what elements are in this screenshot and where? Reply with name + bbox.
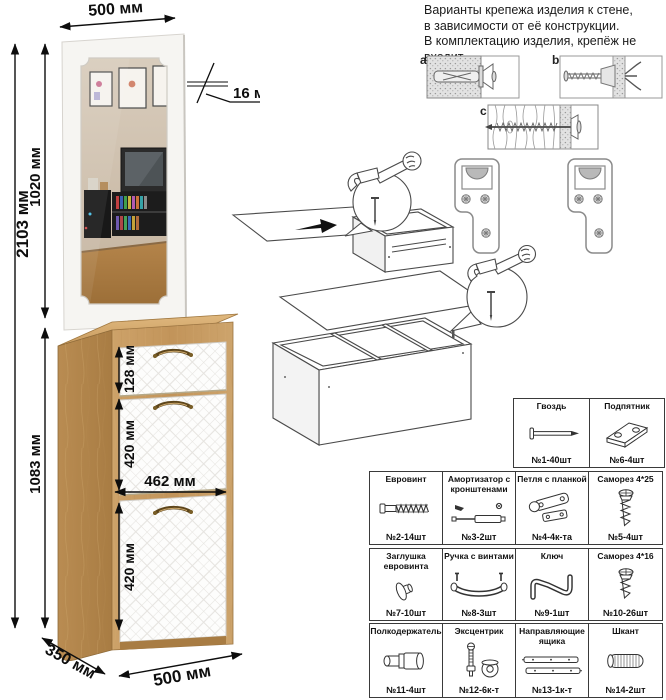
part-cell-dowel: Шкант №14-2шт	[588, 623, 663, 698]
part-cell-handle: Ручка с винтами №8-3шт	[442, 548, 516, 621]
dim-width-top: 500 мм	[88, 0, 144, 20]
nail-icon	[523, 420, 581, 446]
tv-reflection	[121, 148, 167, 192]
part-cell-gas-strut: Амортизатор с кронштенами №3-2шт	[442, 471, 516, 545]
part-count: №6-4шт	[610, 455, 645, 465]
part-cell-shelf-pin: Полкодержатель №11-4шт	[369, 623, 443, 698]
drawer-slides-icon	[521, 652, 583, 680]
fastener-diagram-b: b	[551, 52, 666, 102]
cam-lock-icon	[450, 642, 508, 680]
part-count: №9-1шт	[535, 608, 570, 618]
footplate-icon	[598, 416, 656, 450]
part-name: Ключ	[541, 552, 563, 562]
part-name: Саморез 4*25	[597, 475, 653, 485]
dowel-icon	[597, 647, 655, 675]
part-count: №14-2шт	[606, 685, 646, 695]
part-name: Направляющие ящика	[517, 627, 587, 647]
part-cell-hinge: Петля с планкой №4-4к-та	[515, 471, 589, 545]
part-name: Подпятник	[604, 402, 649, 412]
part-name: Евровинт	[385, 475, 426, 485]
dim-front-width: 462 мм	[144, 473, 195, 490]
assembly-illustrations	[225, 135, 540, 470]
note-line-2: в зависимости от её конструкции.	[424, 19, 666, 35]
mirror-reflection	[81, 56, 169, 306]
assembly-instruction-sheet: 500 мм 16 мм 2103 мм 1020 мм 1083 мм 128…	[0, 0, 666, 700]
part-count: №12-6к-т	[459, 685, 499, 695]
part-name: Амортизатор с кронштенами	[444, 475, 514, 495]
parts-table-row-3: Заглушка евровинта №7-10шт Ручка с винта…	[369, 548, 663, 621]
part-count: №10-26шт	[603, 608, 648, 618]
part-cell-hex-key: Ключ №9-1шт	[515, 548, 589, 621]
part-count: №11-4шт	[386, 685, 425, 695]
part-count: №1-40шт	[532, 455, 572, 465]
part-name: Эксцентрик	[455, 627, 504, 637]
dim-mirror-height: 1020 мм	[27, 147, 44, 207]
part-name: Петля с планкой	[517, 475, 587, 485]
part-cell-screw-4x25: Саморез 4*25 №5-4шт	[588, 471, 663, 545]
part-name: Шкант	[612, 627, 639, 637]
shelf-pin-icon	[377, 646, 435, 676]
part-cell-footplate: Подпятник №6-4шт	[589, 398, 665, 468]
hinge-icon	[523, 491, 581, 525]
part-cell-drawer-slides: Направляющие ящика №13-1к-т	[515, 623, 589, 698]
note-line-1: Варианты крепежа изделия к стене,	[424, 3, 666, 19]
part-name: Гвоздь	[537, 402, 567, 412]
part-count: №4-4к-та	[532, 532, 572, 542]
dim-flap2-height: 420 мм	[121, 543, 137, 591]
part-cell-nail: Гвоздь №1-40шт	[513, 398, 590, 468]
part-cell-cap: Заглушка евровинта №7-10шт	[369, 548, 443, 621]
euroscrew-icon	[377, 496, 435, 520]
parts-table-row-4: Полкодержатель №11-4шт Эксцентрик	[369, 623, 663, 698]
gas-strut-icon	[450, 500, 508, 526]
part-count: №13-1к-т	[532, 685, 572, 695]
dim-thickness: 16 мм	[233, 85, 260, 102]
drawer-assembly-step	[233, 152, 453, 272]
fastener-b-label: b	[552, 53, 559, 67]
part-cell-screw-4x16: Саморез 4*16 №10-26шт	[588, 548, 663, 621]
handle-icon	[448, 570, 510, 600]
part-count: №5-4шт	[608, 532, 643, 542]
part-name: Полкодержатель	[370, 627, 441, 637]
part-count: №3-2шт	[462, 532, 497, 542]
furniture-drawing: 500 мм 16 мм 2103 мм 1020 мм 1083 мм 128…	[0, 0, 260, 700]
dim-cabinet-height: 1083 мм	[27, 434, 44, 494]
part-cell-euroscrew: Евровинт №2-14шт	[369, 471, 443, 545]
part-name: Ручка с винтами	[444, 552, 514, 562]
note-line-3: В комплектацию изделия, крепёж не	[424, 34, 666, 50]
part-name: Саморез 4*16	[597, 552, 653, 562]
part-count: №8-3шт	[462, 608, 497, 618]
back-panel-assembly-step	[273, 246, 536, 446]
part-count: №2-14шт	[386, 532, 426, 542]
screw-4x16-icon	[606, 567, 646, 603]
part-count: №7-10шт	[386, 608, 426, 618]
cap-icon	[377, 576, 435, 604]
fastener-diagram-a: a	[419, 52, 523, 102]
fastener-a-label: a	[420, 53, 427, 67]
dim-drawer-height: 128 мм	[121, 345, 137, 393]
parts-table-row-2: Евровинт №2-14шт Амортизатор с кронштена…	[369, 471, 663, 545]
dim-flap1-height: 420 мм	[121, 420, 137, 468]
fastener-c-label: c	[480, 104, 487, 118]
part-name: Заглушка евровинта	[371, 552, 441, 572]
dim-width-bottom: 500 мм	[152, 661, 213, 690]
hex-key-icon	[524, 569, 580, 601]
mirror-panel	[62, 34, 186, 330]
tv-stand-reflection	[112, 192, 167, 236]
keyhole-bracket-right	[565, 157, 619, 257]
parts-table-row-1: Гвоздь №1-40шт Подпятник №6-4шт	[513, 398, 665, 468]
part-cell-cam-lock: Эксцентрик №12-6к-т	[442, 623, 516, 698]
screw-4x25-icon	[606, 488, 646, 528]
